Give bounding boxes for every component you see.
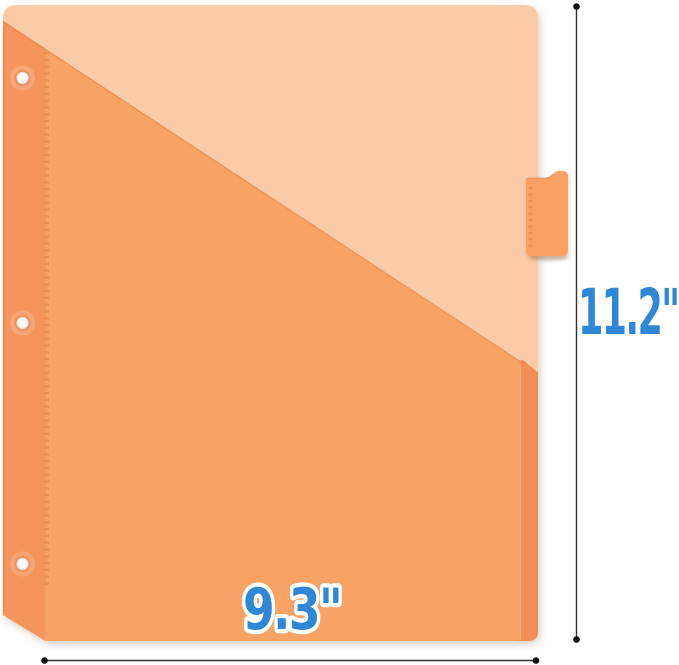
binder-hole-middle [16,317,29,330]
width-dimension-endpoint-right [533,657,540,664]
width-dimension-endpoint-left [41,657,48,664]
height-dimension-endpoint-top [573,3,580,10]
pocket-side-fold [519,360,538,641]
divider-illustration: 11.2" 9.3" [0,0,679,665]
binder-hole-top [16,72,29,85]
binding-edge-strip [3,21,46,641]
height-dimension-endpoint-bottom [573,636,580,643]
height-dimension-label: 11.2" [578,277,678,350]
product-image-canvas: 11.2" 9.3" [0,0,679,665]
binder-hole-bottom [16,558,29,571]
width-dimension-label: 9.3" [243,577,341,643]
